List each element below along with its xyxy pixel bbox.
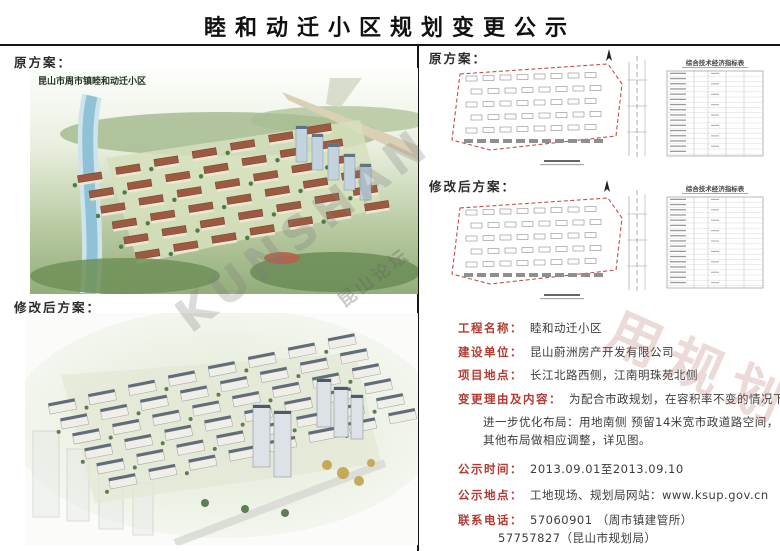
north-arrow-icon (606, 49, 612, 61)
info-row-phone-extra: 57757827（昆山市规划局） (498, 530, 657, 546)
info-label: 联系电话： (458, 513, 523, 527)
foreground-trees (30, 258, 220, 294)
info-row-notice-place: 公示地点：工地现场、规划局网站：www.ksup.gov.cn (458, 487, 769, 503)
plan-caption-lines (540, 160, 584, 165)
table-grid (667, 197, 763, 288)
info-label: 工程名称： (458, 321, 523, 335)
site-plan-modified (432, 178, 667, 304)
info-row-developer: 建设单位：昆山蔚洲房产开发有限公司 (458, 344, 674, 360)
original-plan-rendering: 昆山市周市镇睦和动迁小区 (30, 68, 418, 294)
road-lines (627, 56, 647, 160)
info-value: 为配合市政规划，在容积率不变的情况下， (569, 392, 780, 406)
project-info-block: 工程名称：睦和动迁小区 建设单位：昆山蔚洲房产开发有限公司 项目地点：长江北路西… (458, 314, 776, 550)
table-grid (667, 71, 763, 156)
info-row-notice-time: 公示时间：2013.09.01至2013.09.10 (458, 461, 684, 477)
modified-plan-rendering (25, 313, 418, 545)
site-plan-buildings (464, 207, 603, 278)
info-label: 公示地点： (458, 488, 523, 502)
north-arrow-icon (604, 180, 610, 192)
info-value: 工地现场、规划局网站：www.ksup.gov.cn (530, 488, 769, 502)
indicator-table-modified: 综合技术经济指标表 (664, 182, 766, 294)
page-title: 睦和动迁小区规划变更公示 (0, 10, 780, 42)
info-row-location: 项目地点：长江北路西侧，江南明珠苑北侧 (458, 367, 698, 383)
table-title: 综合技术经济指标表 (686, 184, 745, 193)
change-detail-line: 进一步优化布局：用地南侧 预留14米宽市政道路空间， (483, 414, 779, 430)
info-value: 2013.09.01至2013.09.10 (530, 462, 684, 476)
rendering-caption: 昆山市周市镇睦和动迁小区 (38, 75, 146, 87)
site-plan-buildings (464, 73, 603, 144)
info-value: 57060901 （周市镇建管所） (530, 513, 693, 527)
info-label: 变更理由及内容： (458, 392, 562, 406)
info-value: 长江北路西侧，江南明珠苑北侧 (530, 368, 698, 382)
road-lines (627, 190, 647, 294)
info-label: 公示时间： (458, 462, 523, 476)
info-label: 项目地点： (458, 368, 523, 382)
site-plan-original (432, 46, 667, 170)
info-value: 昆山蔚洲房产开发有限公司 (530, 345, 674, 359)
info-row-change-reason: 变更理由及内容：为配合市政规划，在容积率不变的情况下， (458, 391, 780, 407)
indicator-table-original: 综合技术经济指标表 (664, 56, 766, 162)
plan-caption-lines (540, 294, 584, 299)
info-label: 建设单位： (458, 345, 523, 359)
info-value: 睦和动迁小区 (530, 321, 602, 335)
table-title: 综合技术经济指标表 (686, 58, 745, 67)
info-row-phone: 联系电话：57060901 （周市镇建管所） (458, 512, 693, 528)
flower-patch (264, 252, 300, 264)
change-detail-line: 其他布局做相应调整，详见图。 (483, 432, 651, 448)
info-row-project-name: 工程名称：睦和动迁小区 (458, 320, 602, 336)
